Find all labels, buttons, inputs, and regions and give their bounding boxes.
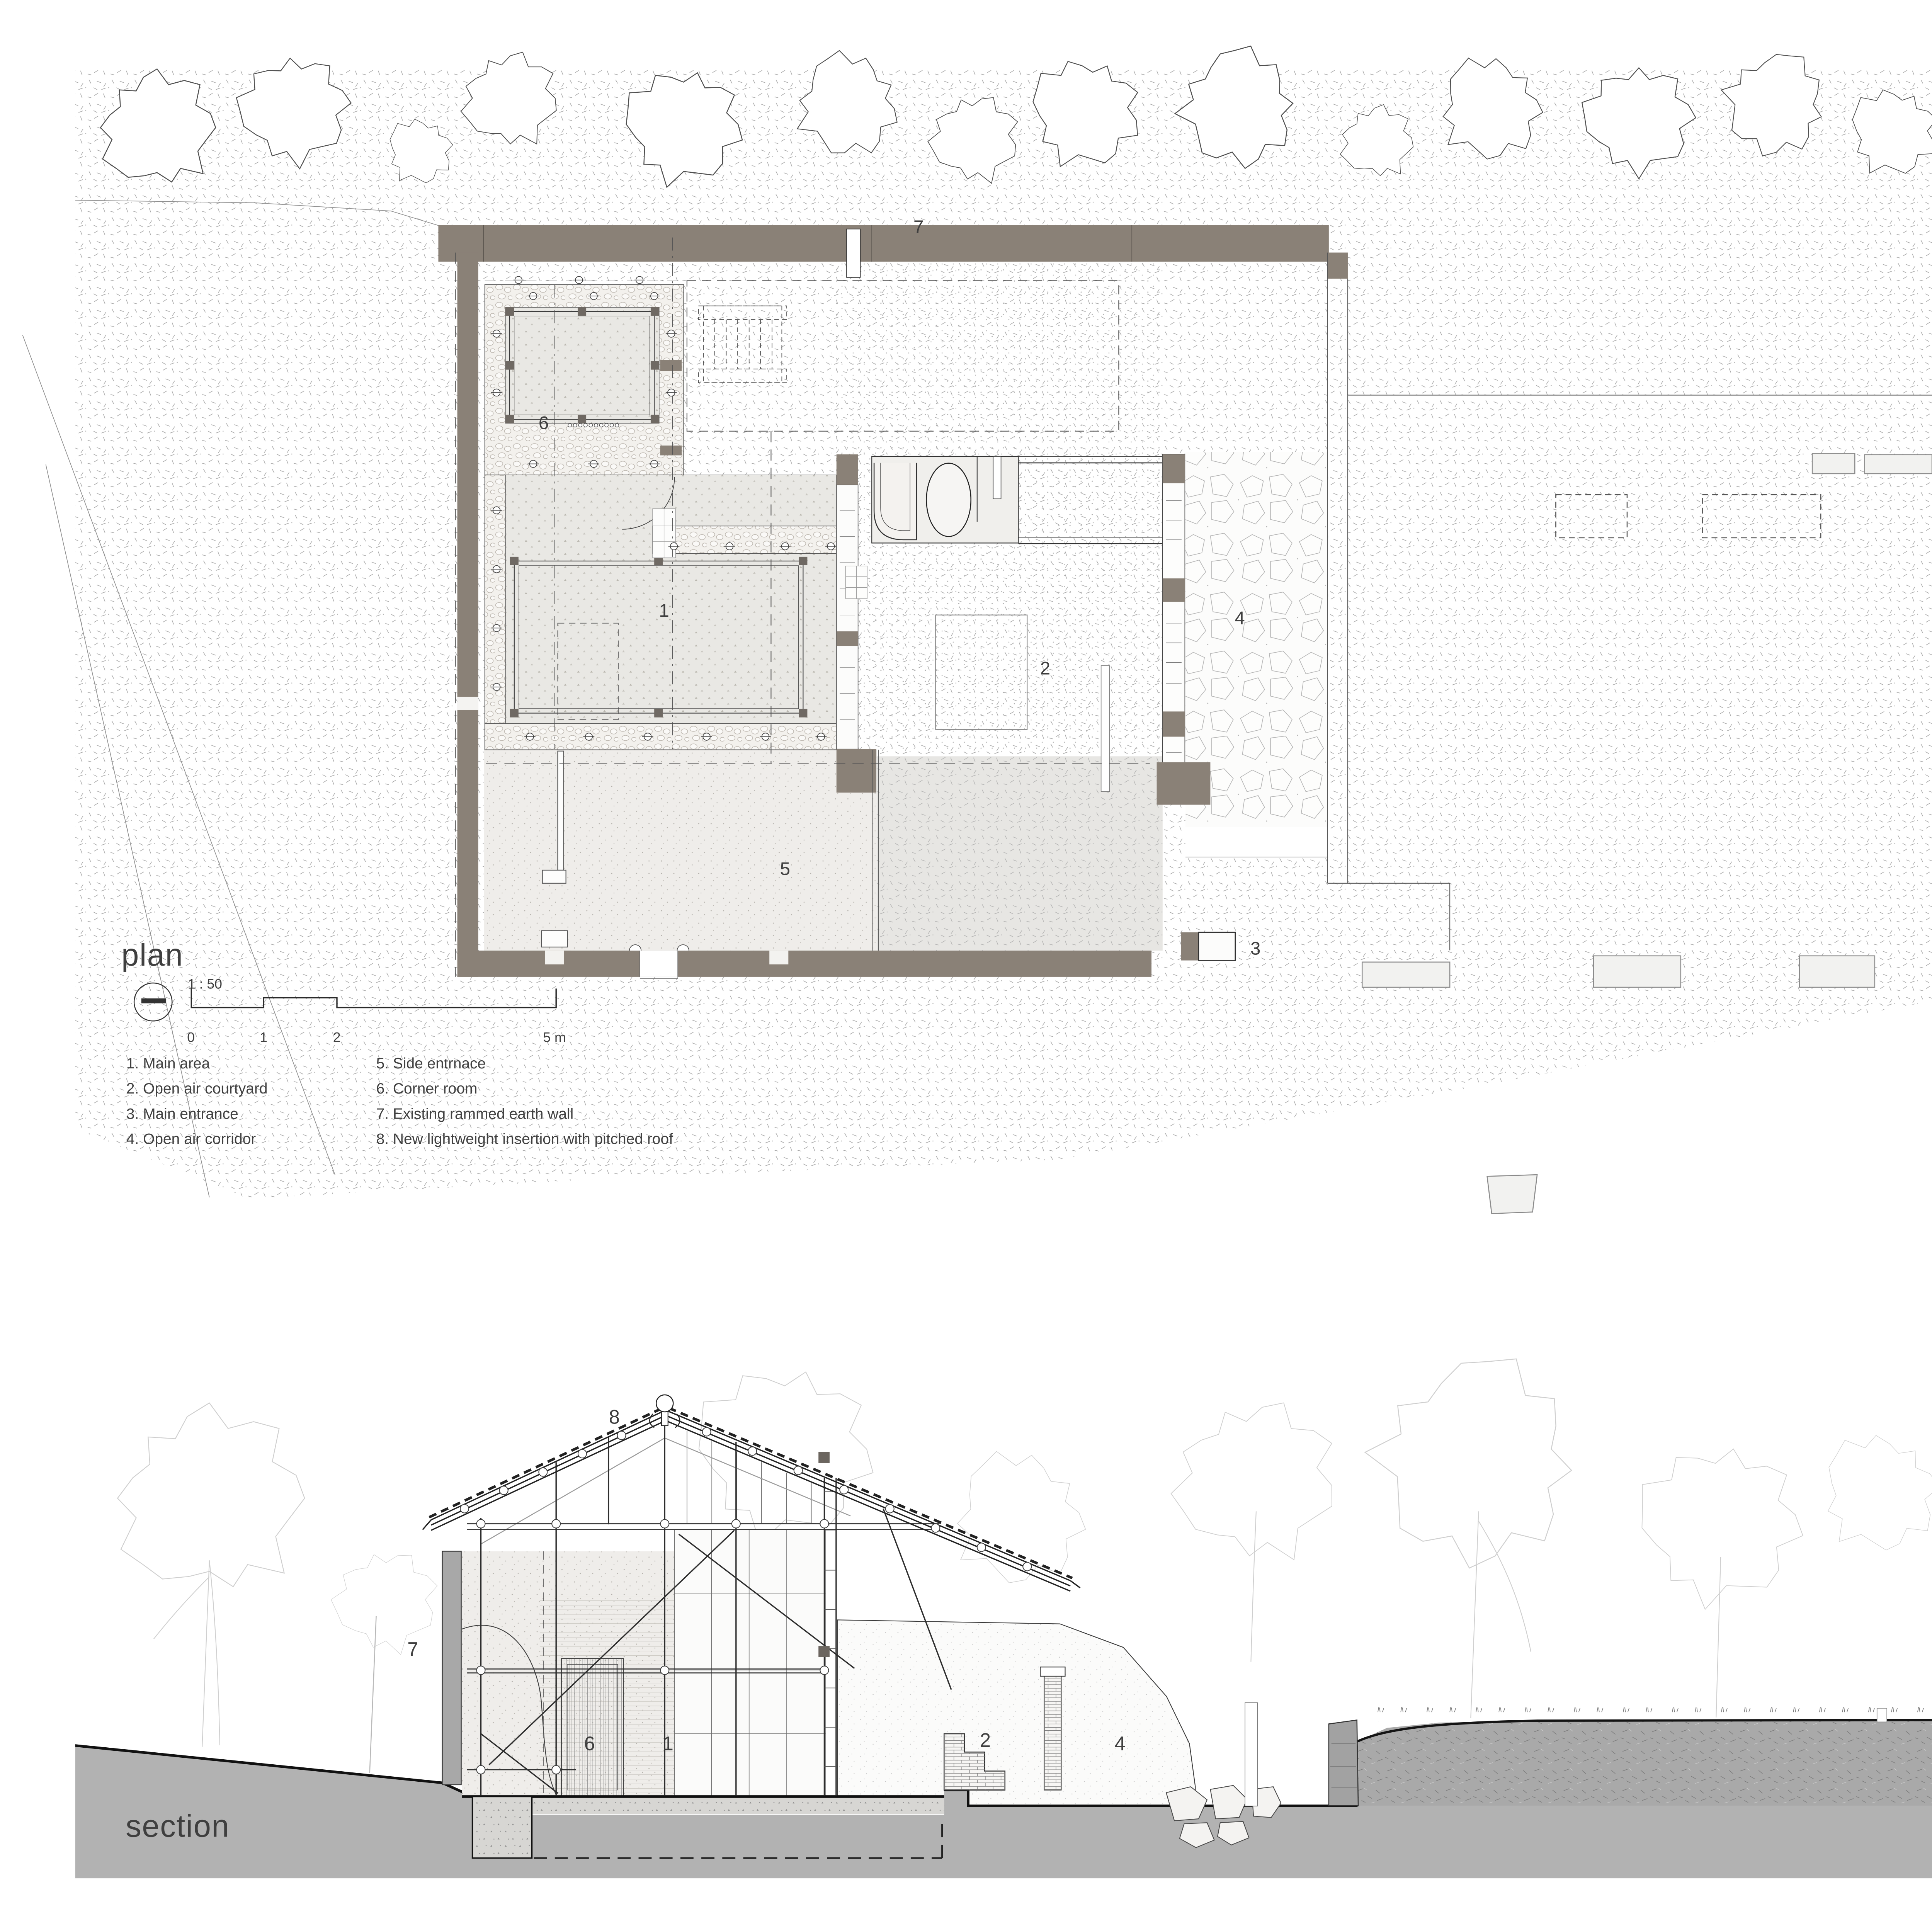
door: [561, 1658, 624, 1796]
plan-label-side-entrance: 5: [780, 859, 790, 879]
section-label-courtyard: 2: [980, 1729, 991, 1751]
legend-item-8: 8. New lightweight insertion with pitche…: [376, 1131, 673, 1148]
corridor-walkway: [1185, 827, 1328, 857]
courtyard-pillar: [1101, 666, 1110, 792]
earth-bank-elevation: [837, 1620, 1195, 1806]
small-post: [1877, 1708, 1887, 1722]
plan-label-corridor: 4: [1235, 608, 1245, 628]
legend-item-1: 1. Main area: [126, 1055, 210, 1072]
entrance-wall-post: [1181, 932, 1198, 961]
scale-tick-2: 2: [333, 1029, 341, 1045]
existing-wall-section: [442, 1551, 461, 1785]
plan-label-courtyard: 2: [1040, 658, 1050, 679]
floor-slab: [472, 1797, 944, 1815]
wall-block: [818, 1452, 830, 1463]
brick-pillar: [1040, 1667, 1065, 1790]
legend-item-6: 6. Corner room: [376, 1080, 478, 1097]
plan-label-main-entrance: 3: [1250, 938, 1260, 959]
plan-drawing: 1 2 3 4 5 6 7 plan 1 : 50 0 1 2 5 m 1. M…: [22, 30, 1932, 1214]
scale-tick-0: 0: [187, 1029, 195, 1045]
architectural-drawing-sheet: 1 2 3 4 5 6 7 plan 1 : 50 0 1 2 5 m 1. M…: [0, 0, 1932, 1932]
section-trees: [117, 1326, 1932, 1667]
section-label-existing-wall: 7: [407, 1638, 418, 1660]
terrace-texture: [877, 756, 1163, 951]
section-drawing: 8 7 6 1 2 4 section: [75, 1326, 1932, 1878]
plan-label-existing-wall: 7: [913, 217, 923, 237]
section-title: section: [126, 1809, 230, 1844]
fence-post: [1245, 1703, 1257, 1806]
glazed-wall: [675, 1530, 826, 1796]
entrance-step: [1199, 932, 1235, 961]
plan-label-main-area: 1: [659, 600, 669, 621]
wall-notch: [457, 697, 478, 710]
scale-tick-1: 1: [260, 1029, 267, 1045]
side-entrance-floor: [484, 750, 877, 951]
wall-notch: [769, 951, 788, 964]
section-label-corridor: 4: [1115, 1732, 1126, 1754]
side-entrance-gap: [640, 951, 678, 977]
section-label-roof: 8: [609, 1406, 620, 1428]
wall-notch: [545, 951, 564, 964]
main-area: [485, 454, 876, 793]
foundation-block: [472, 1797, 532, 1858]
legend-item-7: 7. Existing rammed earth wall: [376, 1105, 574, 1122]
legend-item-4: 4. Open air corridor: [126, 1131, 256, 1148]
section-label-corner-room: 6: [584, 1732, 595, 1754]
scale-ratio: 1 : 50: [188, 976, 222, 992]
retaining-wall: [1329, 1720, 1358, 1806]
planted-berm: [1357, 1707, 1932, 1806]
right-wall-rungs: [824, 1492, 836, 1766]
plan-title: plan: [121, 937, 183, 973]
legend-item-3: 3. Main entrance: [126, 1105, 238, 1122]
scale-tick-5m: 5 m: [543, 1029, 566, 1045]
wall-post: [847, 229, 861, 277]
plan-label-corner-room: 6: [539, 413, 549, 434]
legend-item-2: 2. Open air courtyard: [126, 1080, 268, 1097]
wall-block: [818, 1646, 830, 1657]
section-label-main-area: 1: [663, 1732, 673, 1754]
legend-item-5: 5. Side entrnace: [376, 1055, 486, 1072]
